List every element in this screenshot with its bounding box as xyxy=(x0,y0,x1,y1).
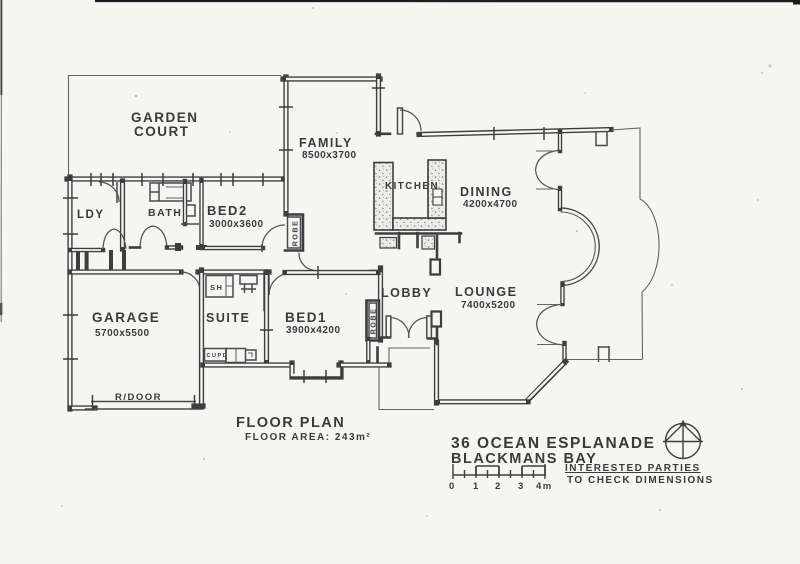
svg-text:2: 2 xyxy=(495,481,502,492)
svg-text:BATH: BATH xyxy=(148,207,182,219)
svg-text:BED1: BED1 xyxy=(285,310,327,325)
svg-text:LOBBY: LOBBY xyxy=(381,286,432,300)
svg-text:SUITE: SUITE xyxy=(206,311,250,325)
svg-text:LOUNGE: LOUNGE xyxy=(455,285,517,299)
svg-text:KITCHEN: KITCHEN xyxy=(385,181,439,192)
svg-text:36 OCEAN ESPLANADE: 36 OCEAN ESPLANADE xyxy=(451,435,655,452)
svg-text:ROBE: ROBE xyxy=(369,308,378,335)
svg-text:3000x3600: 3000x3600 xyxy=(209,219,264,230)
svg-text:4200x4700: 4200x4700 xyxy=(463,199,518,210)
svg-text:FAMILY: FAMILY xyxy=(299,136,353,150)
svg-text:BED2: BED2 xyxy=(207,203,248,218)
svg-text:0: 0 xyxy=(449,481,456,492)
svg-text:LDY: LDY xyxy=(77,209,105,221)
svg-text:R/DOOR: R/DOOR xyxy=(115,392,162,403)
svg-text:TO CHECK DIMENSIONS: TO CHECK DIMENSIONS xyxy=(567,475,714,486)
svg-text:7400x5200: 7400x5200 xyxy=(461,300,516,311)
svg-text:5700x5500: 5700x5500 xyxy=(95,328,150,339)
svg-text:SH: SH xyxy=(210,283,223,292)
svg-text:3: 3 xyxy=(518,481,525,492)
svg-text:8500x3700: 8500x3700 xyxy=(302,150,357,161)
svg-text:INTERESTED PARTIES: INTERESTED PARTIES xyxy=(565,463,701,474)
svg-text:3900x4200: 3900x4200 xyxy=(286,325,341,336)
svg-text:4m: 4m xyxy=(536,481,553,492)
svg-text:FLOOR PLAN: FLOOR PLAN xyxy=(236,415,345,431)
svg-text:COURT: COURT xyxy=(134,124,190,139)
svg-text:FLOOR AREA: 243m²: FLOOR AREA: 243m² xyxy=(245,432,371,443)
svg-text:ROBE: ROBE xyxy=(290,220,299,247)
svg-text:CUPD: CUPD xyxy=(207,353,229,359)
svg-text:DINING: DINING xyxy=(460,185,513,199)
svg-text:1: 1 xyxy=(473,481,480,492)
svg-text:GARAGE: GARAGE xyxy=(92,310,160,325)
svg-text:GARDEN: GARDEN xyxy=(131,110,199,125)
